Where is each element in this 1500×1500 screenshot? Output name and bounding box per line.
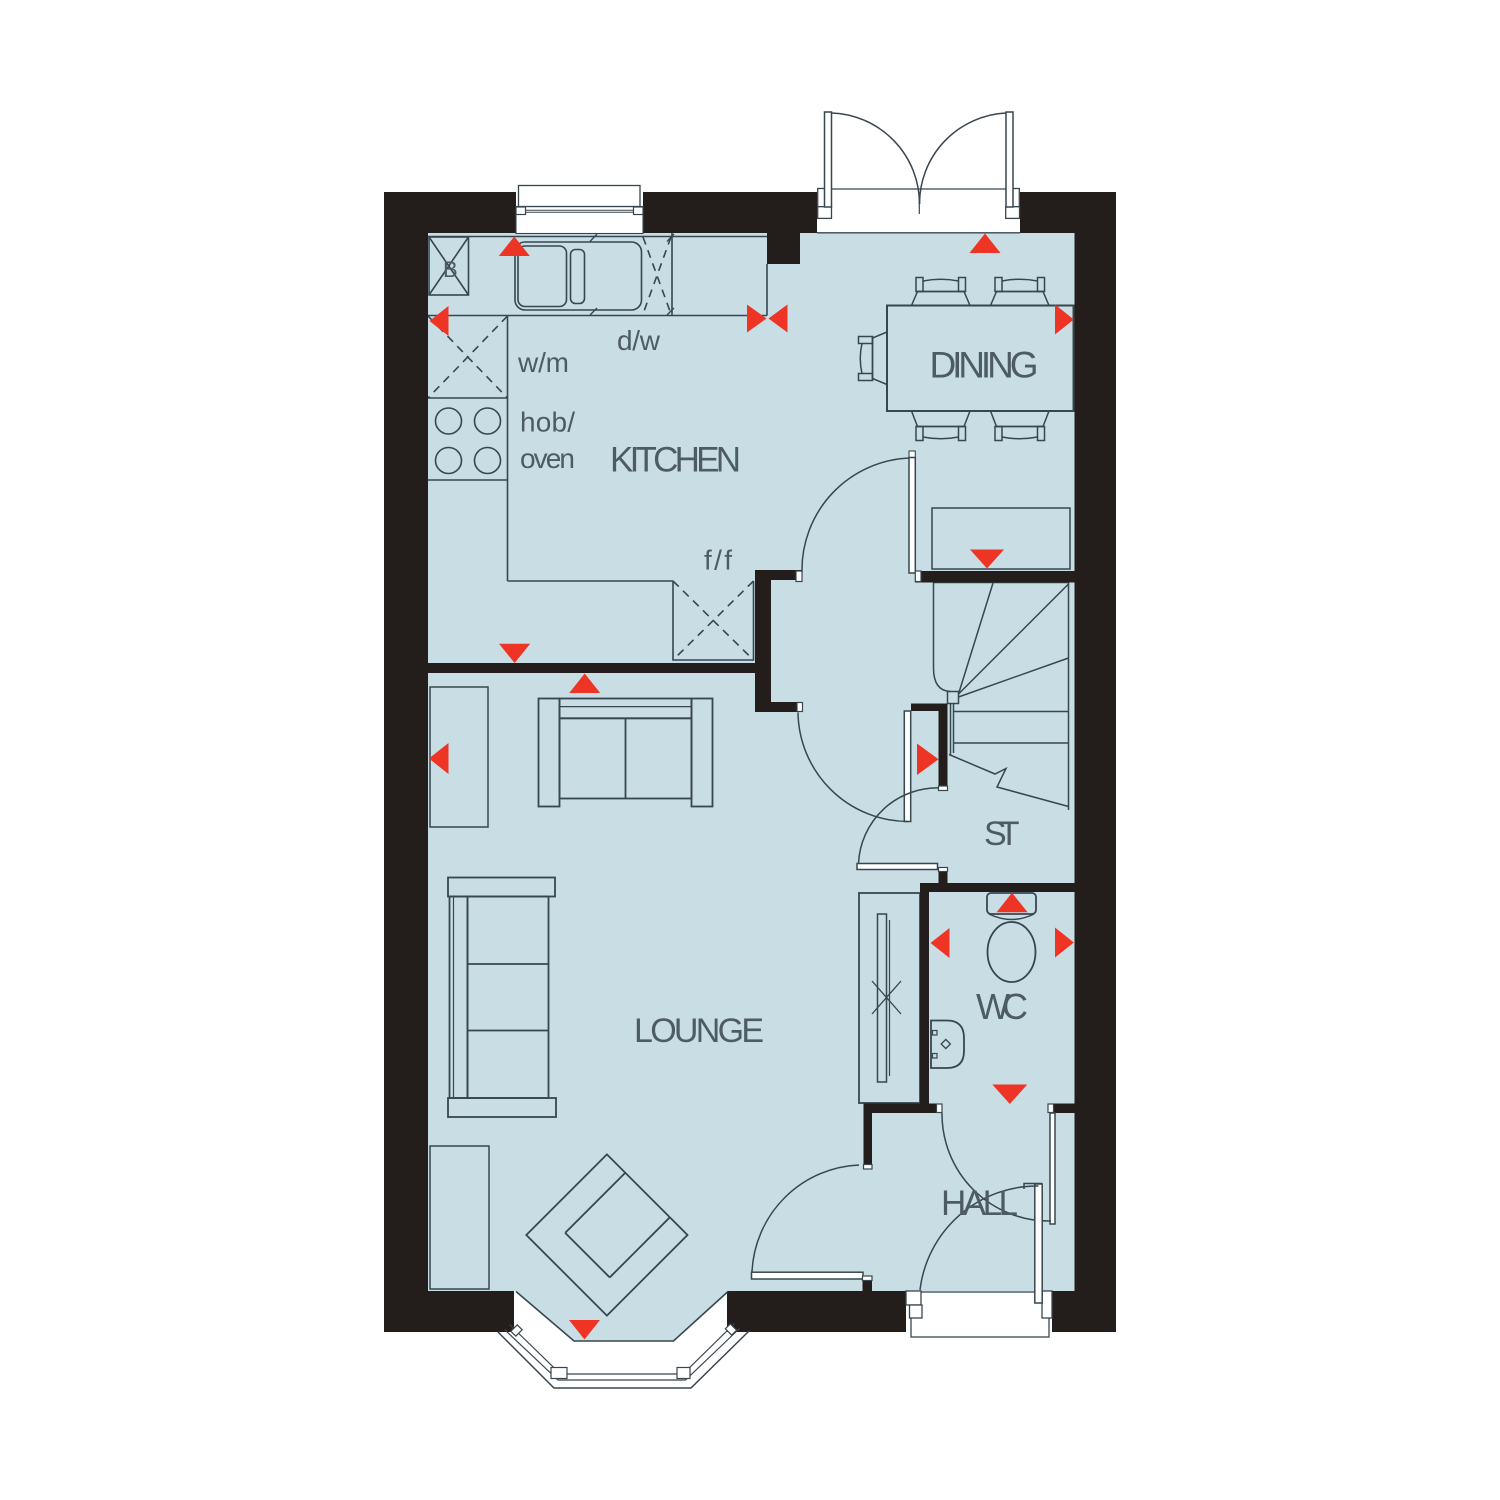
svg-text:HALL: HALL [941, 1184, 1018, 1223]
svg-text:B: B [443, 257, 458, 282]
svg-text:hob/: hob/ [520, 407, 575, 438]
svg-text:d/w: d/w [617, 325, 661, 356]
svg-text:WC: WC [976, 986, 1028, 1027]
svg-text:DINING: DINING [930, 345, 1039, 386]
svg-text:LOUNGE: LOUNGE [634, 1012, 765, 1050]
svg-text:oven: oven [520, 443, 575, 474]
svg-text:ST: ST [984, 815, 1020, 853]
svg-text:w/m: w/m [517, 347, 569, 378]
svg-text:f/f: f/f [704, 545, 732, 576]
svg-text:KITCHEN: KITCHEN [610, 441, 742, 480]
